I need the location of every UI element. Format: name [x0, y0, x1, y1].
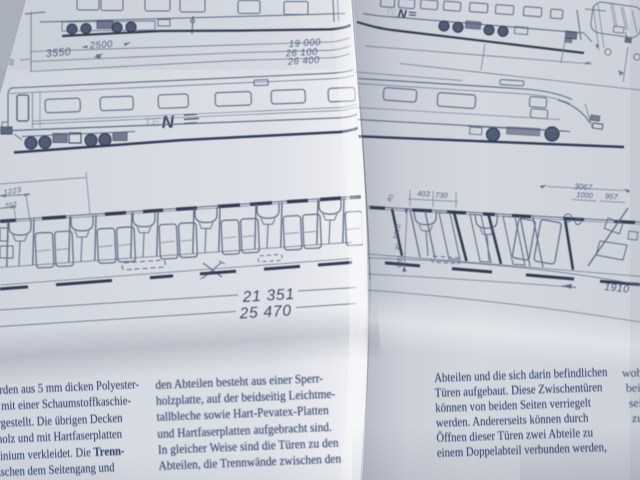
svg-text:957: 957 — [605, 192, 619, 202]
svg-text:1000: 1000 — [576, 190, 594, 200]
svg-text:TE: TE — [143, 114, 161, 130]
svg-text:730: 730 — [435, 191, 449, 201]
svg-text:403: 403 — [417, 189, 431, 199]
